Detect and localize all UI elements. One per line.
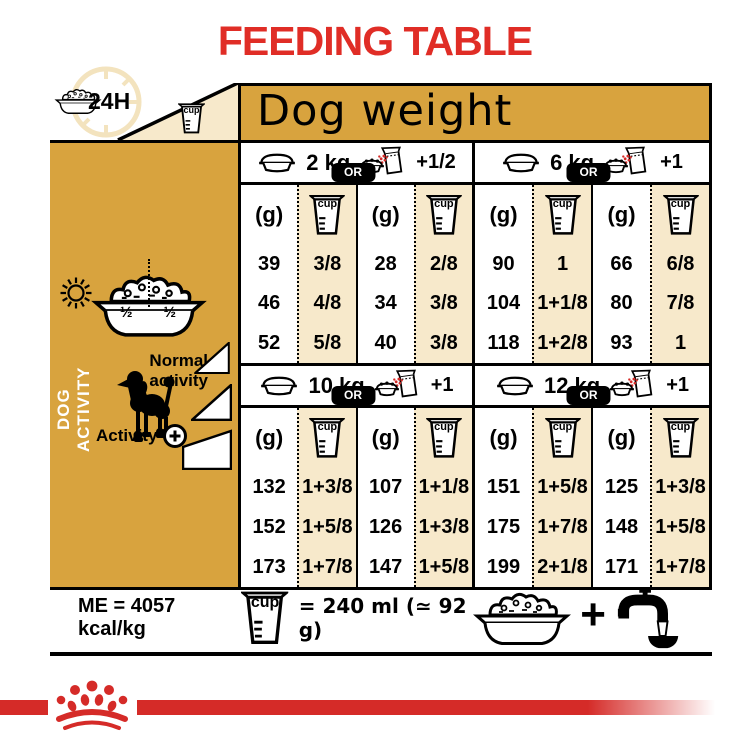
or-badge: OR: [566, 386, 610, 405]
measuring-cup-icon: cup: [241, 587, 288, 649]
grams-unit-label: (g): [593, 408, 650, 468]
grams-value: 132: [241, 468, 297, 508]
grams-value: 173: [241, 547, 297, 587]
cup-value: 1+5/8: [652, 508, 709, 548]
cup-value: 1+3/8: [652, 468, 709, 508]
feeding-bowl-icon: [259, 375, 299, 397]
weight-header: 6 kg +1 OR: [475, 143, 709, 185]
corner-legend: 24H cup: [50, 83, 238, 143]
cup-value: 1+3/8: [416, 508, 472, 548]
quadrant-10kg: 10 kg +1 OR (g) 132 152 173 cup 1+3/8 1+: [241, 366, 475, 587]
weight-header: 2 kg +1/2 OR: [241, 143, 472, 185]
cups-column: cup 1+5/8 1+7/8 2+1/8: [532, 408, 591, 587]
dog-activity-sidebar: ½ ½ DOG ACTIVITY Normal activity Activit…: [50, 143, 238, 590]
dog-activity-vertical-label: DOG ACTIVITY: [54, 343, 94, 475]
grams-unit-label: (g): [593, 185, 650, 245]
cup-value: 1+1/8: [416, 468, 472, 508]
grams-column: (g) 125 148 171: [591, 408, 650, 587]
grams-column: (g) 132 152 173: [241, 408, 297, 587]
kibble-bowl-icon: [472, 589, 572, 647]
or-badge: OR: [566, 163, 610, 182]
cup-value: 1: [652, 324, 709, 363]
quadrant-body: (g) 39 46 52 cup 3/8 4/8 5/8 (g) 28 34: [241, 185, 472, 363]
cups-column: cup 1+1/8 1+3/8 1+5/8: [414, 408, 472, 587]
quadrant-12kg: 12 kg +1 OR (g) 151 175 199 cup 1+5/8 1+: [475, 366, 709, 587]
cup-label: cup: [545, 199, 581, 210]
grams-value: 39: [241, 245, 297, 284]
weight-header: 10 kg +1 OR: [241, 366, 472, 408]
measuring-cup-icon: cup: [545, 417, 581, 459]
cup-value: 1+3/8: [299, 468, 355, 508]
cup-value: 3/8: [299, 245, 355, 284]
cup-column-header: cup: [416, 185, 472, 245]
moon-icon: [196, 279, 222, 307]
grams-value: 148: [593, 508, 650, 548]
activity-ramp-large-icon: [182, 424, 232, 470]
cup-value: 1+7/8: [534, 508, 591, 548]
activity-row: Activity: [96, 423, 188, 449]
dog-weight-header: Dog weight: [238, 83, 712, 143]
grams-unit-label: (g): [475, 185, 532, 245]
quadrant-body: (g) 90 104 118 cup 1 1+1/8 1+2/8 (g) 66: [475, 185, 709, 363]
grams-value: 34: [358, 284, 414, 323]
grams-value: 199: [475, 547, 532, 587]
grams-value: 90: [475, 245, 532, 284]
grams-value: 147: [358, 547, 414, 587]
activity-ramp-medium-icon: [191, 384, 232, 421]
grams-column: (g) 90 104 118: [475, 185, 532, 363]
feeding-table: 2 kg +1/2 OR (g) 39 46 52 cup 3/8 4/8: [238, 143, 712, 590]
cup-value: 1+7/8: [652, 547, 709, 587]
grams-value: 107: [358, 468, 414, 508]
grams-value: 118: [475, 324, 532, 363]
grams-value: 66: [593, 245, 650, 284]
cup-value: 6/8: [652, 245, 709, 284]
extra-portion-label: +1: [666, 374, 689, 397]
activity-ramp-small-icon: [194, 342, 230, 374]
cup-label: cup: [309, 422, 345, 433]
cup-label: cup: [241, 595, 288, 611]
hours-label: 24H: [88, 88, 130, 115]
feeding-table-sheet: FEEDING TABLE 24H cup Dog weight ½ ½ DOG…: [0, 0, 750, 750]
cups-column: cup 6/8 7/8 1: [650, 185, 709, 363]
brand-band-right: [137, 700, 715, 715]
half-portion-left: ½: [120, 304, 133, 321]
grams-column: (g) 39 46 52: [241, 185, 297, 363]
measuring-cup-icon: cup: [309, 417, 345, 459]
extra-portion-label: +1: [431, 374, 454, 397]
cup-label: cup: [663, 199, 699, 210]
quadrant-6kg: 6 kg +1 OR (g) 90 104 118 cup 1 1+1/8: [475, 143, 709, 366]
grams-value: 171: [593, 547, 650, 587]
grams-value: 126: [358, 508, 414, 548]
water-tap-icon: [614, 587, 686, 650]
cup-value: 1+1/8: [534, 284, 591, 323]
plus-sign: +: [580, 590, 606, 640]
grams-value: 175: [475, 508, 532, 548]
cups-column: cup 3/8 4/8 5/8: [297, 185, 355, 363]
cup-value: 2/8: [416, 245, 472, 284]
crown-logo: [50, 678, 134, 734]
grams-unit-label: (g): [241, 408, 297, 468]
grams-value: 151: [475, 468, 532, 508]
grams-value: 28: [358, 245, 414, 284]
cup-column-header: cup: [652, 408, 709, 468]
measuring-cup-icon: cup: [545, 194, 581, 236]
cup-label: cup: [426, 422, 462, 433]
feeding-bowl-icon: [257, 152, 297, 174]
page-title: FEEDING TABLE: [0, 18, 750, 65]
cup-value: 1+2/8: [534, 324, 591, 363]
grams-unit-label: (g): [475, 408, 532, 468]
activity-label: Activity: [96, 426, 157, 446]
measuring-cup-icon: cup: [178, 102, 205, 135]
cup-column-header: cup: [299, 408, 355, 468]
brand-band-left: [0, 700, 48, 715]
cup-value: 1+5/8: [299, 508, 355, 548]
weight-header: 12 kg +1 OR: [475, 366, 709, 408]
cup-value: 1: [534, 245, 591, 284]
cups-column: cup 1+3/8 1+5/8 1+7/8: [297, 408, 355, 587]
grams-value: 46: [241, 284, 297, 323]
grams-value: 104: [475, 284, 532, 323]
measuring-cup-icon: cup: [663, 417, 699, 459]
metabolizable-energy-label: ME = 4057 kcal/kg: [78, 595, 227, 641]
grams-column: (g) 151 175 199: [475, 408, 532, 587]
feeding-bowl-icon: [495, 375, 535, 397]
cup-value: 3/8: [416, 284, 472, 323]
cup-value: 7/8: [652, 284, 709, 323]
cup-column-header: cup: [534, 185, 591, 245]
or-badge: OR: [331, 163, 375, 182]
cup-equivalence-label: = 240 ml (≃ 92 g): [299, 594, 473, 642]
cup-label: cup: [426, 199, 462, 210]
cups-column: cup 1+3/8 1+5/8 1+7/8: [650, 408, 709, 587]
measuring-cup-icon: cup: [426, 194, 462, 236]
cup-column-header: cup: [652, 185, 709, 245]
quadrant-2kg: 2 kg +1/2 OR (g) 39 46 52 cup 3/8 4/8: [241, 143, 475, 366]
cup-column-header: cup: [299, 185, 355, 245]
measuring-cup-icon: cup: [309, 194, 345, 236]
grams-unit-label: (g): [358, 408, 414, 468]
cup-label: cup: [309, 199, 345, 210]
food-plus-water-group: +: [472, 587, 686, 650]
footer-legend: ME = 4057 kcal/kg cup = 240 ml (≃ 92 g) …: [50, 590, 712, 656]
or-badge: OR: [331, 386, 375, 405]
cup-label: cup: [178, 106, 205, 115]
extra-portion-label: +1/2: [416, 151, 455, 174]
grams-column: (g) 66 80 93: [591, 185, 650, 363]
sun-icon: [58, 275, 94, 311]
grams-value: 52: [241, 324, 297, 363]
cup-value: 3/8: [416, 324, 472, 363]
cup-column-header: cup: [534, 408, 591, 468]
measuring-cup-icon: cup: [426, 417, 462, 459]
food-pouch-bowl-icon: [374, 368, 422, 403]
cup-value: 4/8: [299, 284, 355, 323]
cup-value: 1+7/8: [299, 547, 355, 587]
cup-value: 2+1/8: [534, 547, 591, 587]
extra-portion-label: +1: [660, 151, 683, 174]
grams-value: 125: [593, 468, 650, 508]
measuring-cup-icon: cup: [663, 194, 699, 236]
grams-value: 152: [241, 508, 297, 548]
grams-value: 80: [593, 284, 650, 323]
quadrant-body: (g) 151 175 199 cup 1+5/8 1+7/8 2+1/8 (g…: [475, 408, 709, 587]
cup-column-header: cup: [416, 408, 472, 468]
quadrant-body: (g) 132 152 173 cup 1+3/8 1+5/8 1+7/8 (g…: [241, 408, 472, 587]
cup-value: 1+5/8: [534, 468, 591, 508]
split-dashed-line: [148, 259, 150, 307]
grams-unit-label: (g): [358, 185, 414, 245]
food-pouch-bowl-icon: [609, 368, 657, 403]
half-portion-right: ½: [163, 304, 176, 321]
grams-value: 93: [593, 324, 650, 363]
grams-value: 40: [358, 324, 414, 363]
cup-label: cup: [545, 422, 581, 433]
grams-column: (g) 28 34 40: [356, 185, 414, 363]
half-half-bowl: ½ ½: [90, 259, 208, 343]
feeding-bowl-icon: [501, 152, 541, 174]
cup-value: 1+5/8: [416, 547, 472, 587]
cups-column: cup 1 1+1/8 1+2/8: [532, 185, 591, 363]
cups-column: cup 2/8 3/8 3/8: [414, 185, 472, 363]
cup-label: cup: [663, 422, 699, 433]
grams-unit-label: (g): [241, 185, 297, 245]
grams-column: (g) 107 126 147: [356, 408, 414, 587]
cup-value: 5/8: [299, 324, 355, 363]
